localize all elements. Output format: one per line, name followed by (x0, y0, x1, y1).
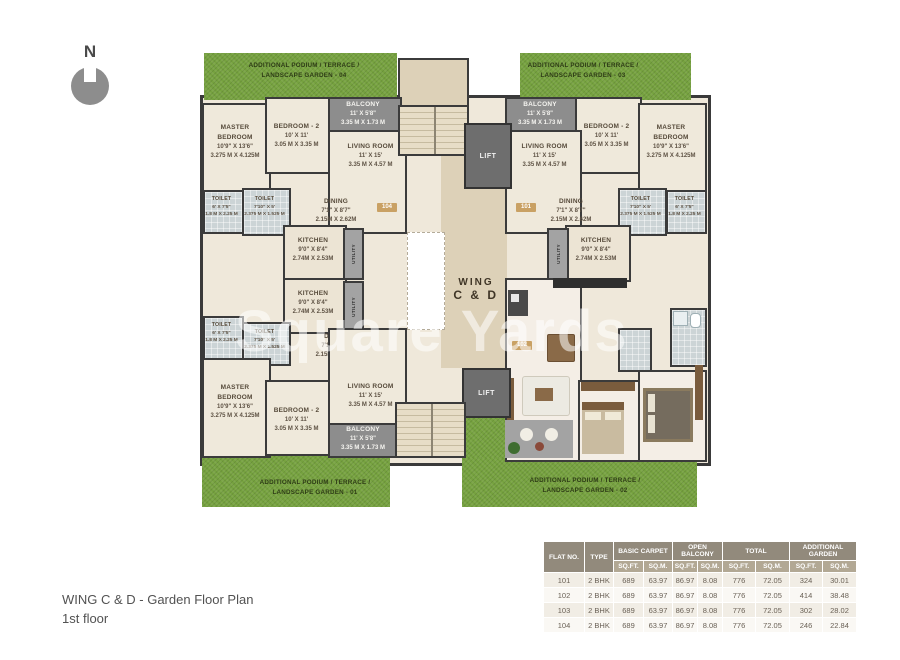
flat103-bedroom2-label: BEDROOM - 2 10' X 11' 3.05 M X 3.35 M (269, 406, 324, 434)
flat102-wardrobe-1 (581, 382, 635, 391)
flat101-master-bedroom-label: MASTER BEDROOM 10'9" X 13'6" 3.275 M X 4… (641, 123, 701, 161)
sub-sqm: SQ.M. (756, 561, 789, 572)
flat104-dining-label: DINING 7'1" X 8'7" 2.15M X 2.62M (305, 197, 367, 225)
garden-label-02: ADDITIONAL PODIUM / TERRACE /LANDSCAPE G… (510, 476, 660, 496)
flat104-balcony-label: BALCONY 11' X 5'8" 3.35 M X 1.73 M (333, 100, 393, 128)
flat102-coffee-table (535, 388, 553, 401)
flat102-shower (673, 311, 688, 326)
flat102-plant (508, 442, 520, 454)
flat102-bed1-pillow-2 (605, 412, 621, 420)
garden-label-04: ADDITIONAL PODIUM / TERRACE /LANDSCAPE G… (229, 61, 379, 81)
flat101-dining-label: DINING 7'1" X 8'7" 2.15M X 2.62M (540, 197, 602, 225)
sub-sqm: SQ.M. (698, 561, 722, 572)
floor-plan: ADDITIONAL PODIUM / TERRACE /LANDSCAPE G… (195, 50, 715, 512)
flat102-dining-table (547, 334, 575, 362)
table-row-103: 1032 BHK 68963.97 86.978.08 77672.05 302… (544, 603, 856, 617)
flat102-patio-chair-1 (520, 428, 533, 441)
flat103-toilet-1-label: TOILET 6' X 7'5" 1.8 M X 2.25 M (203, 322, 240, 344)
flat102-wardrobe-2 (695, 365, 703, 420)
plan-subtitle: 1st floor (62, 611, 108, 626)
col-open-balcony: OPEN BALCONY (673, 542, 722, 560)
plan-title: WING C & D - Garden Floor Plan (62, 592, 253, 607)
flat102-bed2-pillow-1 (648, 394, 655, 412)
flat103-utility: UTILITY (343, 281, 364, 332)
flat104-living-room-label: LIVING ROOM 11' X 15' 3.35 M X 4.57 M (343, 142, 398, 170)
sub-sqft: SQ.FT. (723, 561, 755, 572)
flat102-bed2-pillow-2 (648, 415, 655, 433)
flat104-kitchen-label: KITCHEN 9'0" X 8'4" 2.74M X 2.53M (285, 236, 341, 264)
flat103-kitchen-label: KITCHEN 9'0" X 8'4" 2.74M X 2.53M (285, 289, 341, 317)
flat101-utility: UTILITY (547, 228, 569, 280)
flat101-kitchen-label: KITCHEN 9'0" X 8'4" 2.74M X 2.53M (568, 236, 624, 264)
flat102-number-badge: 102 (512, 341, 532, 350)
flat103-toilet-2-label: TOILET 7'10" X 5' 2.375 M X 1.525 M (242, 329, 287, 351)
garden-label-03: ADDITIONAL PODIUM / TERRACE /LANDSCAPE G… (508, 61, 658, 81)
flat104-number-badge: 104 (377, 203, 397, 212)
flat101-living-room-label: LIVING ROOM 11' X 15' 3.35 M X 4.57 M (517, 142, 572, 170)
flat103-master-bedroom-label: MASTER BEDROOM 10'9" X 13'6" 3.275 M X 4… (205, 383, 265, 421)
area-table: FLAT NO. TYPE BASIC CARPET OPEN BALCONY … (543, 541, 857, 633)
floor-plan-page: N ADDITIONAL PODIUM / TERRACE /LANDSCAPE… (0, 0, 900, 660)
flat102-wc-fixture (690, 313, 701, 328)
flat104-toilet-2-label: TOILET 7'10" X 5' 2.375 M X 1.525 M (242, 196, 287, 218)
flat102-bed1-pillow-1 (585, 412, 601, 420)
staircase-bottom (395, 402, 466, 458)
wing-label: WING C & D (440, 277, 512, 302)
flat102-patio-chair-2 (545, 428, 558, 441)
flat101-toilet-1-label: TOILET 6' X 7'5" 1.8 M X 2.25 M (666, 196, 703, 218)
flat104-utility: UTILITY (343, 228, 364, 280)
north-label: N (78, 42, 102, 62)
flat102-bed1-headboard (582, 402, 624, 410)
table-row-102: 1022 BHK 68963.97 86.978.08 77672.05 414… (544, 588, 856, 602)
col-flat-no: FLAT NO. (544, 542, 584, 572)
col-basic-carpet: BASIC CARPET (614, 542, 672, 560)
col-total: TOTAL (723, 542, 789, 560)
flat104-toilet-1-label: TOILET 6' X 7'5" 1.8 M X 2.25 M (203, 196, 240, 218)
flat102-kitchen-counter (553, 278, 627, 288)
staircase-top (398, 105, 469, 156)
north-compass-notch (84, 64, 96, 82)
table-row-104: 1042 BHK 68963.97 86.978.08 77672.05 246… (544, 618, 856, 632)
flat103-living-room-label: LIVING ROOM 11' X 15' 3.35 M X 4.57 M (343, 382, 398, 410)
flat102-toilet (618, 328, 652, 372)
flat104-bedroom2-label: BEDROOM - 2 10' X 11' 3.05 M X 3.35 M (269, 122, 324, 150)
col-type: TYPE (585, 542, 613, 572)
lift-top: LIFT (464, 123, 512, 189)
flat102-sink (511, 294, 519, 302)
sub-sqm: SQ.M. (644, 561, 672, 572)
flat101-balcony-label: BALCONY 11' X 5'8" 3.35 M X 1.73 M (510, 100, 570, 128)
sub-sqm: SQ.M. (823, 561, 856, 572)
flat104-master-bedroom-label: MASTER BEDROOM 10'9" X 13'6" 3.275 M X 4… (205, 123, 265, 161)
flat101-toilet-2-label: TOILET 7'10" X 5' 2.375 M X 1.525 M (618, 196, 663, 218)
sub-sqft: SQ.FT. (790, 561, 822, 572)
sub-sqft: SQ.FT. (614, 561, 643, 572)
col-additional-garden: ADDITIONAL GARDEN (790, 542, 856, 560)
table-row-101: 1012 BHK 68963.97 86.978.08 77672.05 324… (544, 573, 856, 587)
sub-sqft: SQ.FT. (673, 561, 697, 572)
garden-label-01: ADDITIONAL PODIUM / TERRACE /LANDSCAPE G… (240, 478, 390, 498)
table-header-row: FLAT NO. TYPE BASIC CARPET OPEN BALCONY … (544, 542, 856, 560)
stair-landing (398, 58, 469, 109)
flat101-number-badge: 101 (516, 203, 536, 212)
lift-bottom: LIFT (462, 368, 511, 418)
flat101-bedroom2-label: BEDROOM - 2 10' X 11' 3.05 M X 3.35 M (579, 122, 634, 150)
flat102-patio-table (535, 442, 544, 451)
flat103-balcony-label: BALCONY 11' X 5'8" 3.35 M X 1.73 M (333, 425, 393, 453)
